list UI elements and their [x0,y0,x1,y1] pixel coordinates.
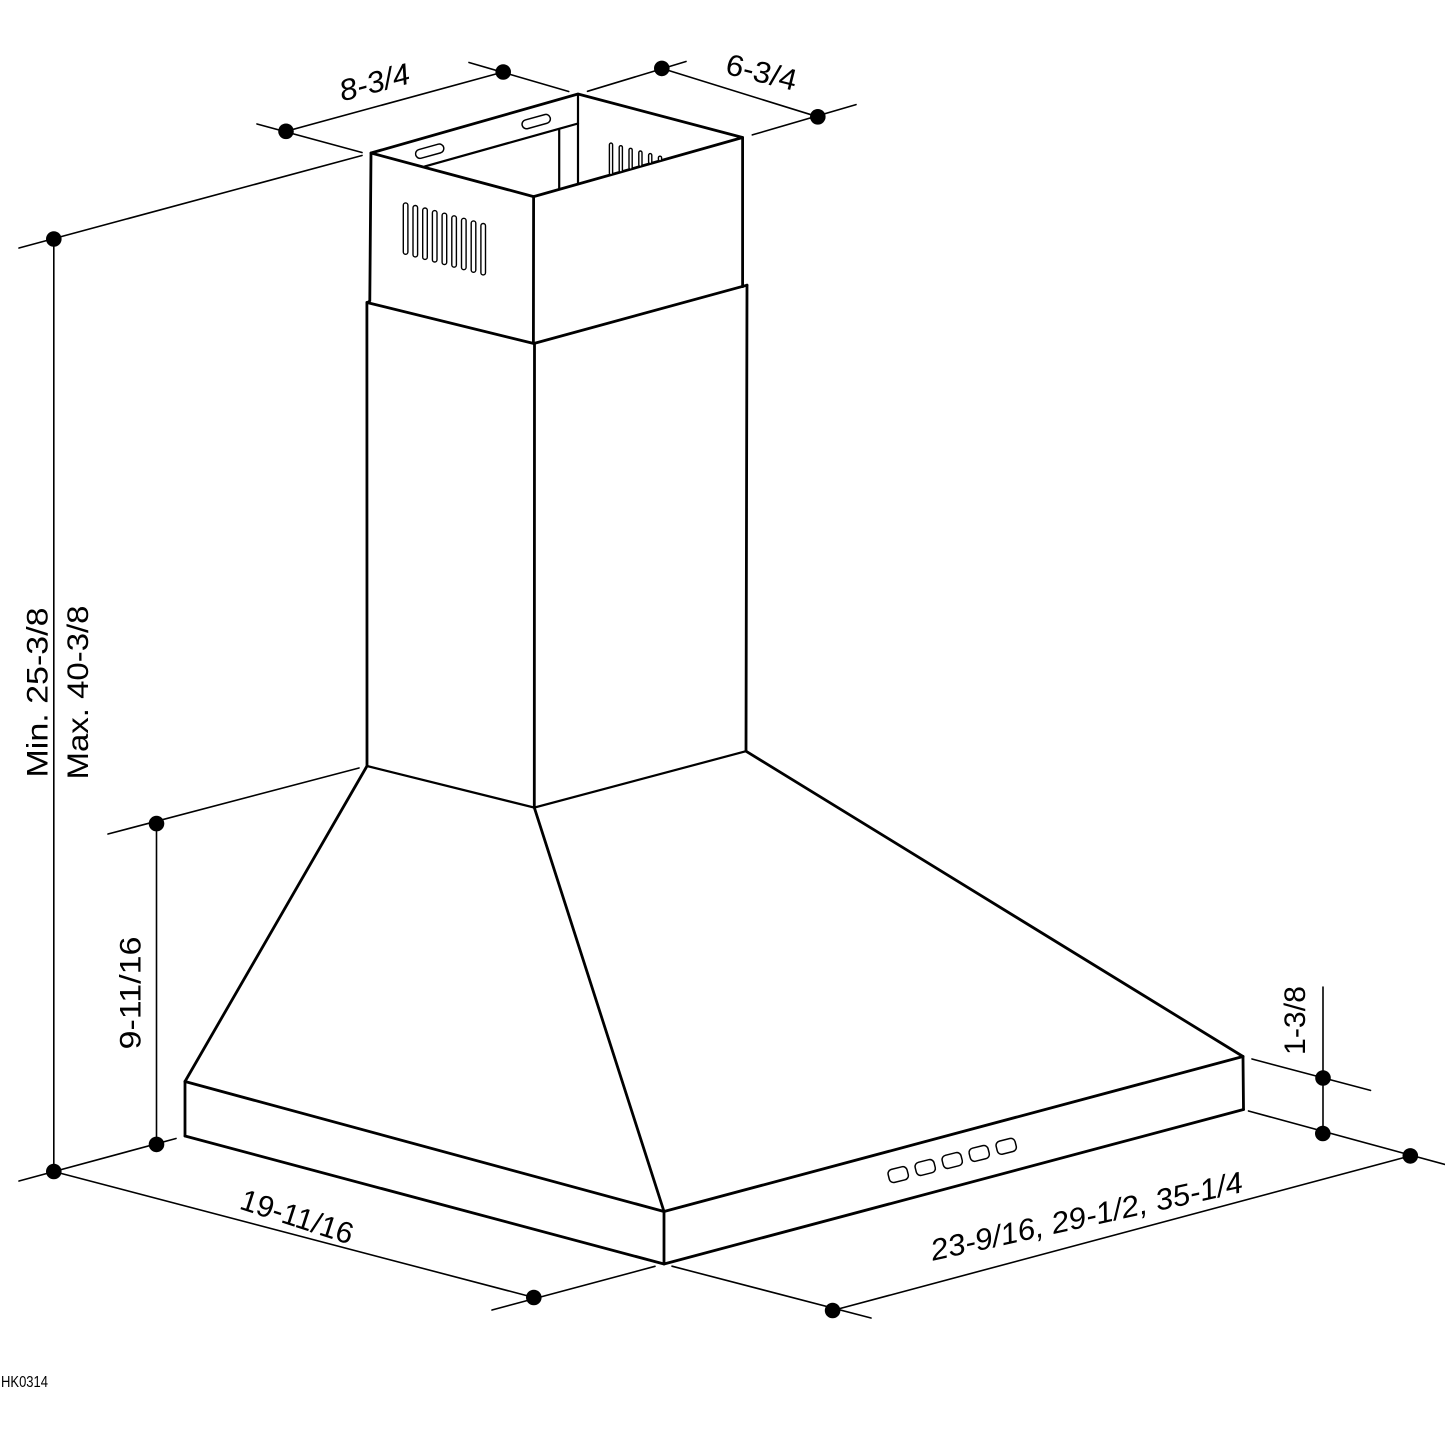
svg-text:Min. 25-3/8: Min. 25-3/8 [22,608,55,778]
svg-text:1-3/8: 1-3/8 [1279,986,1312,1055]
svg-text:Max. 40-3/8: Max. 40-3/8 [62,606,95,780]
svg-text:HK0314: HK0314 [1,1374,48,1391]
svg-text:9-11/16: 9-11/16 [115,937,148,1050]
